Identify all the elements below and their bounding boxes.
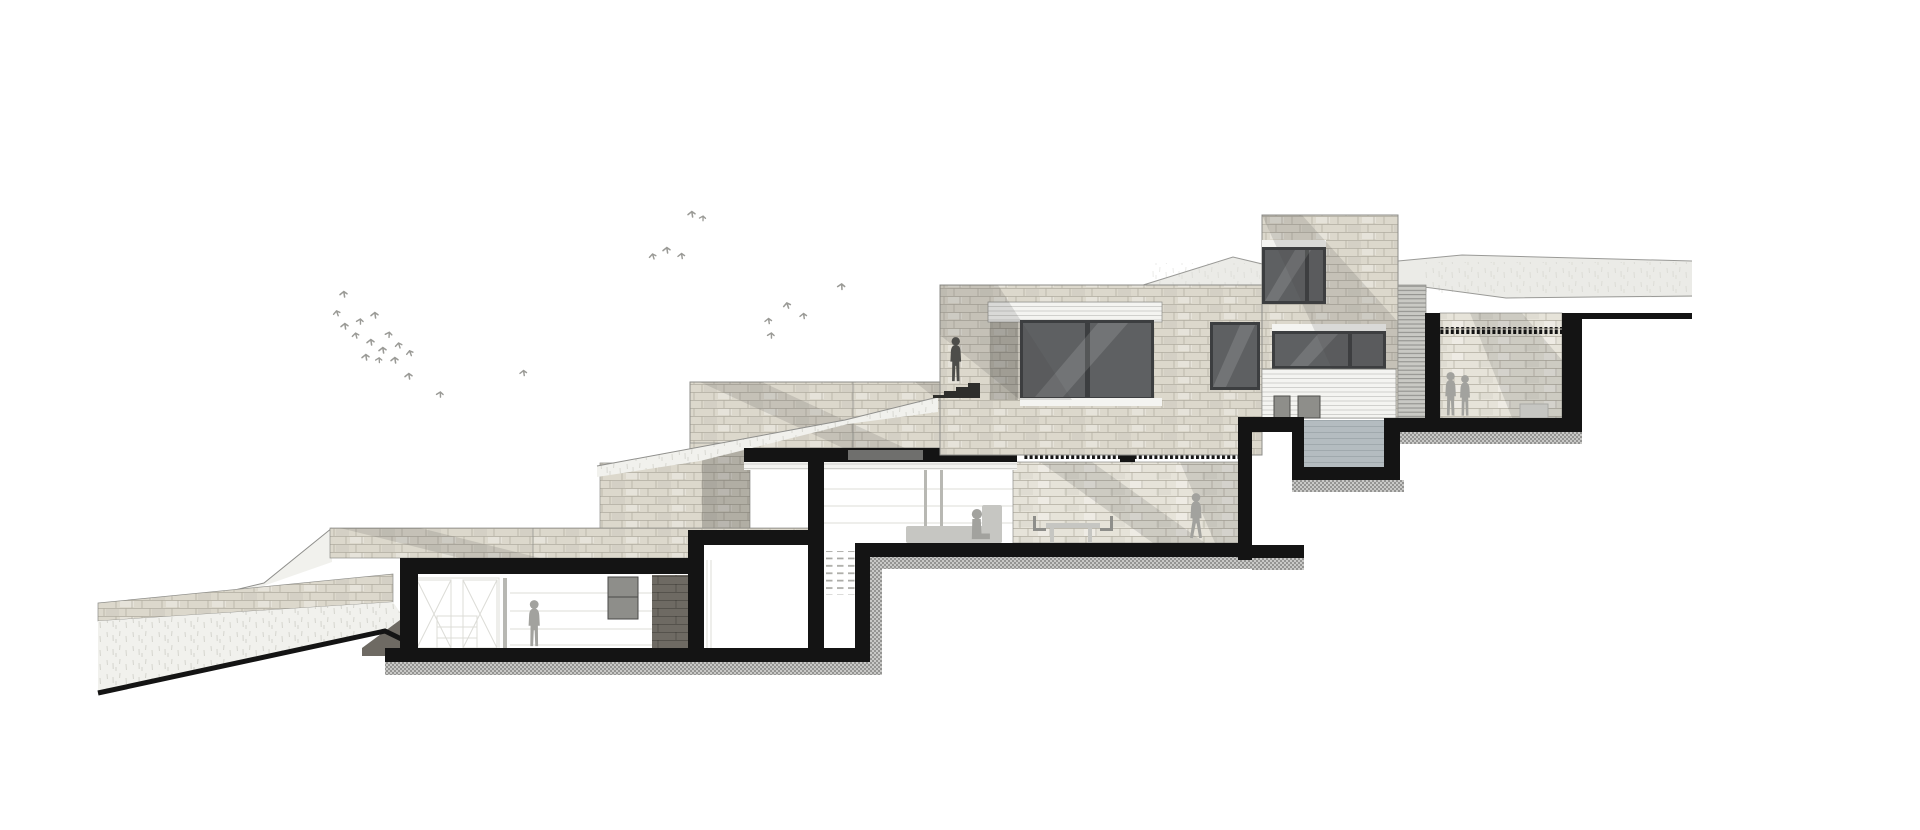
shadow-stone-wall <box>652 575 690 650</box>
courtyard-bench <box>1520 404 1548 418</box>
pool-water <box>1304 420 1384 467</box>
bird-single <box>520 371 527 376</box>
louver-screen <box>1398 285 1426 418</box>
courtyard-railing <box>1440 327 1562 334</box>
entry-window <box>1210 322 1260 390</box>
bird-flock-left <box>333 292 443 398</box>
architectural-section-drawing <box>0 0 1920 830</box>
ground-line-right <box>1582 313 1692 319</box>
stone-tower <box>1262 215 1426 418</box>
upper-entry-level <box>933 285 1262 455</box>
open-stair <box>824 551 855 595</box>
architectural-section-page <box>0 0 1920 830</box>
bird-flocks <box>333 212 845 398</box>
bird-flock-middle <box>649 212 845 339</box>
terrace-stone-wall <box>1013 462 1240 543</box>
dark-cabinet <box>608 577 638 619</box>
sunken-courtyard <box>1425 313 1692 432</box>
